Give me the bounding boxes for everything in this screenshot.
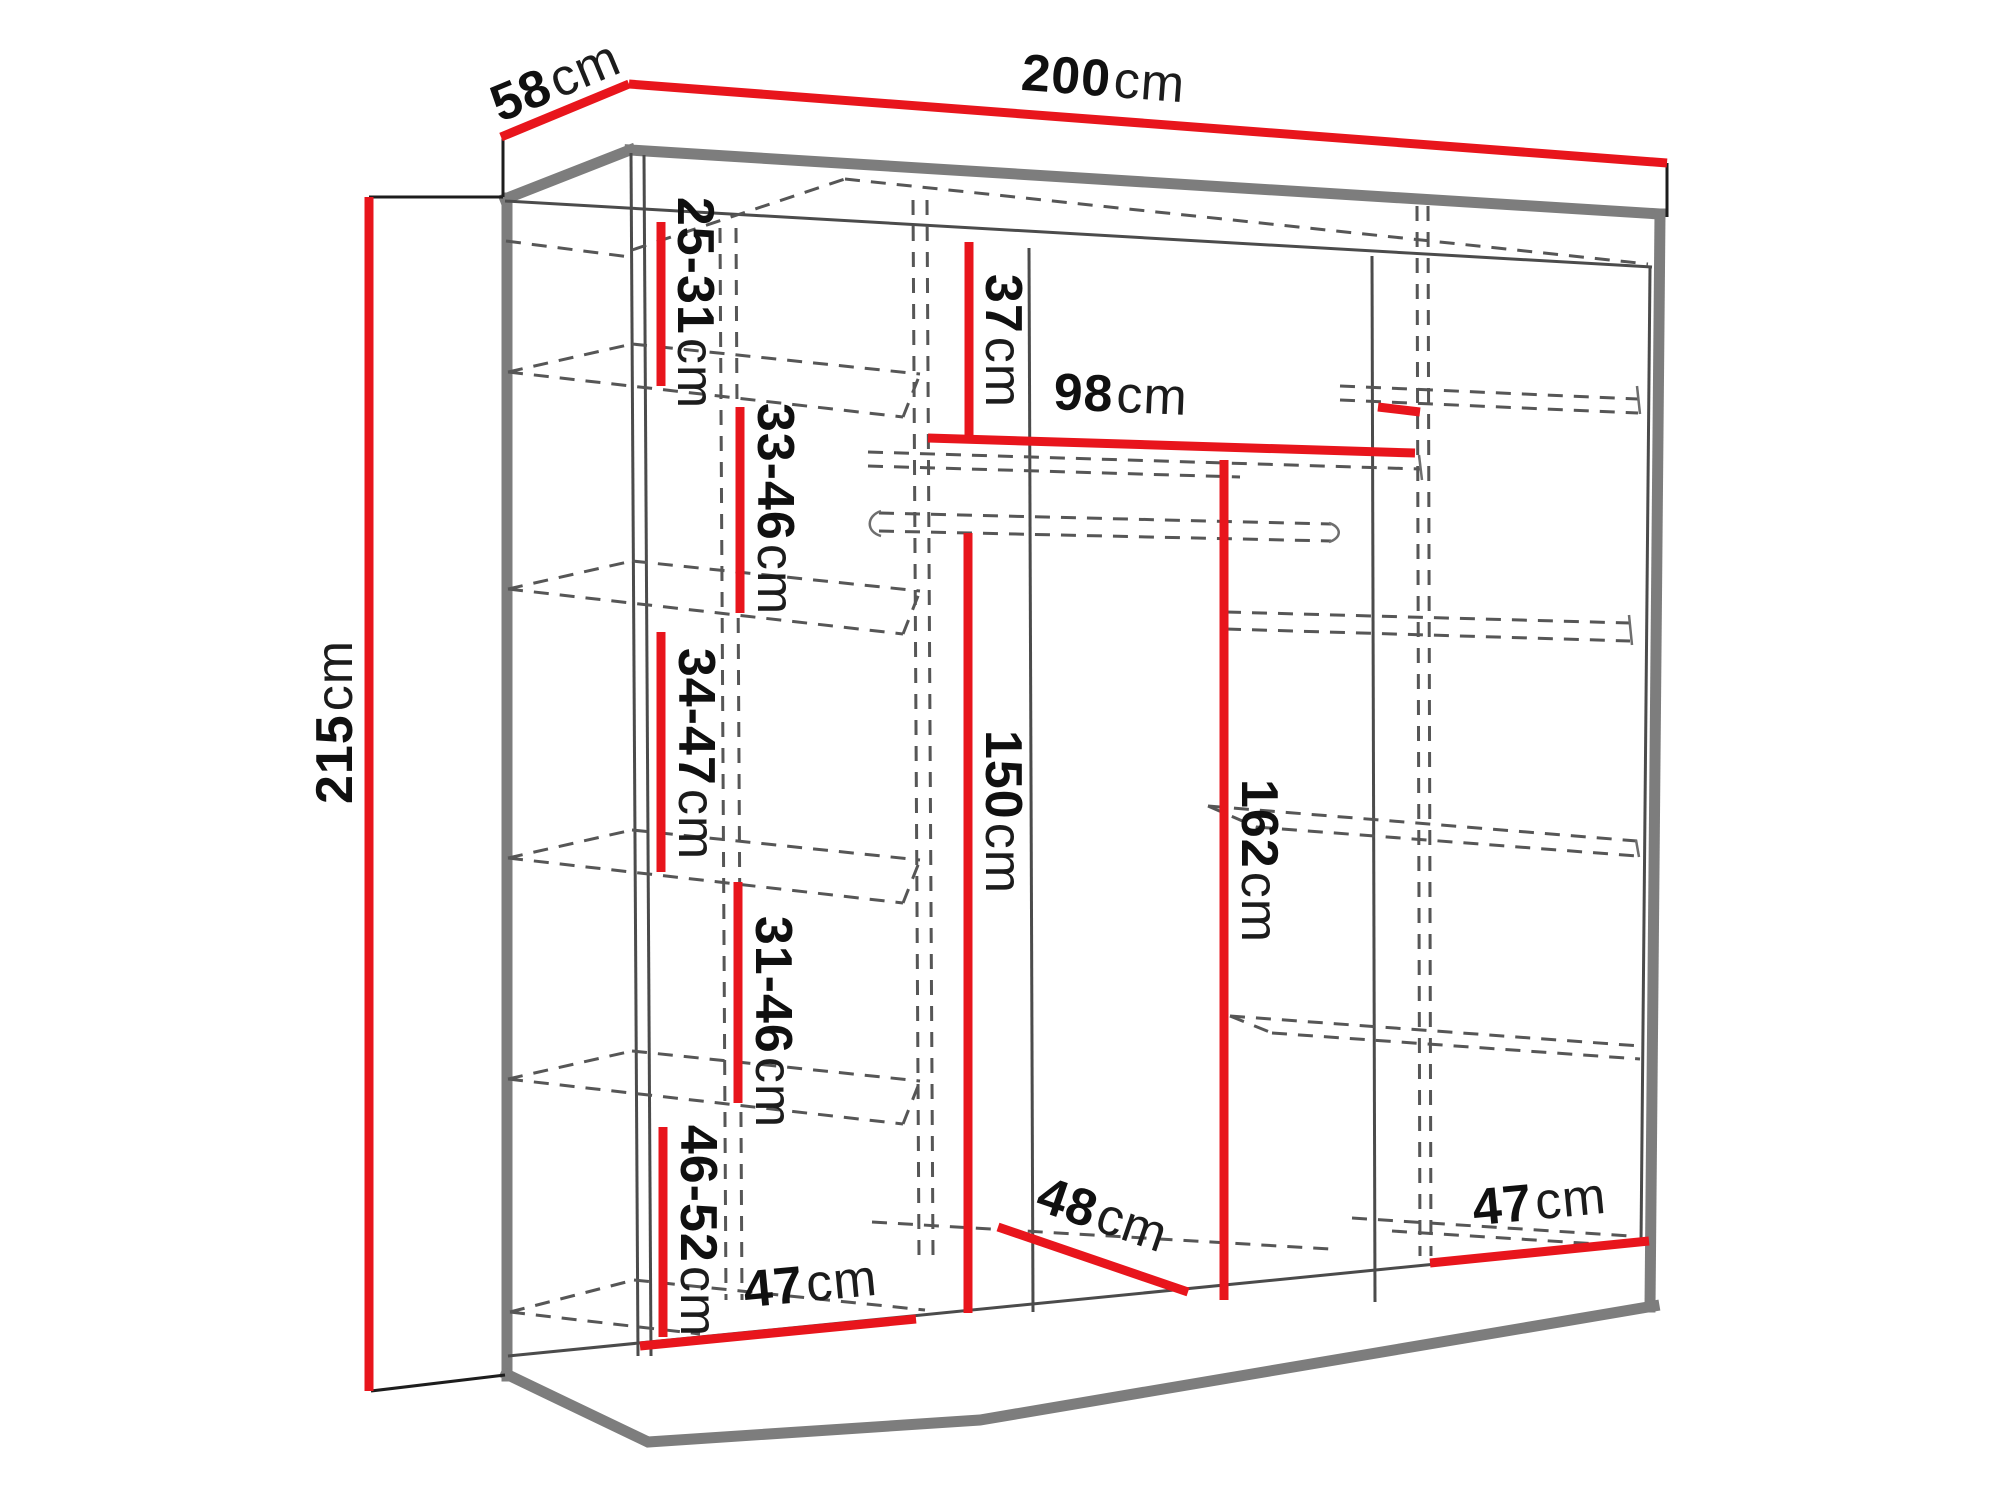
shelf-line [508,1051,632,1079]
shelf-line [508,858,903,903]
divider-right-front-edge [1372,256,1375,1302]
ceiling-back-left-line [506,241,630,257]
shelf-line [903,591,920,634]
divider-right-back-edge-a [1417,206,1420,1256]
rod-right-cap [1329,523,1339,542]
shelf-end-bracket [1419,455,1422,480]
top-front-edge [630,150,1660,214]
interior-left-wall-edge-b [644,155,651,1356]
label-150cm: 150cm [974,730,1032,894]
shelf-end-bracket [1637,386,1640,414]
dim-line-98cm [928,438,1415,453]
interior-left-wall-edge-a [631,153,638,1356]
shelf-line [903,374,920,417]
shelf-line [508,1079,903,1124]
dim-line-47cm-right [1430,1241,1649,1263]
label-33-46cm: 33-46cm [746,403,804,615]
front-right-edge [1650,214,1660,1307]
shelf-line [868,466,1240,477]
dimension-labels: 58cm 200cm 215cm 25-31cm 33-46cm 34-47cm… [306,29,1609,1337]
divider-left-back-edge-b [927,200,933,1256]
shelf-line [508,589,903,634]
shelf-end-bracket [1636,840,1639,857]
label-46-52cm: 46-52cm [669,1125,727,1337]
dim-line-98cm-end [1378,407,1420,412]
wardrobe-dimension-diagram: 58cm 200cm 215cm 25-31cm 33-46cm 34-47cm… [0,0,2000,1500]
side-panel-bottom-edge [371,1375,505,1391]
shelf-line [508,561,632,589]
label-34-47cm: 34-47cm [667,648,725,860]
shelf-line [1226,612,1630,623]
label-31-46cm: 31-46cm [744,916,802,1128]
rod-top-line [879,513,1331,524]
shelf-line [508,830,632,858]
label-25-31cm: 25-31cm [666,197,724,409]
middle-shelf-dashed [868,452,1422,480]
diagram-canvas: 58cm 200cm 215cm 25-31cm 33-46cm 34-47cm… [0,0,2000,1500]
label-98cm: 98cm [1052,363,1189,427]
hanging-rod [870,511,1339,542]
label-47cm-right: 47cm [1470,1167,1609,1238]
divider-right-back-edge-b [1428,206,1431,1256]
shelf-line [1230,1016,1640,1046]
top-left-depth-edge [505,150,630,199]
left-wall-back-edge-b [736,228,742,1300]
floor-line [510,1280,634,1312]
label-162cm: 162cm [1230,779,1288,943]
label-215cm: 215cm [306,640,364,804]
label-200cm: 200cm [1019,44,1187,114]
label-47cm-left: 47cm [741,1249,880,1320]
label-37cm: 37cm [974,274,1032,408]
shelf-line [508,344,632,372]
shelf-line [1272,1033,1640,1059]
rod-bottom-line [879,531,1331,541]
shelf-line [1256,827,1637,856]
shelf-line [1340,386,1638,399]
